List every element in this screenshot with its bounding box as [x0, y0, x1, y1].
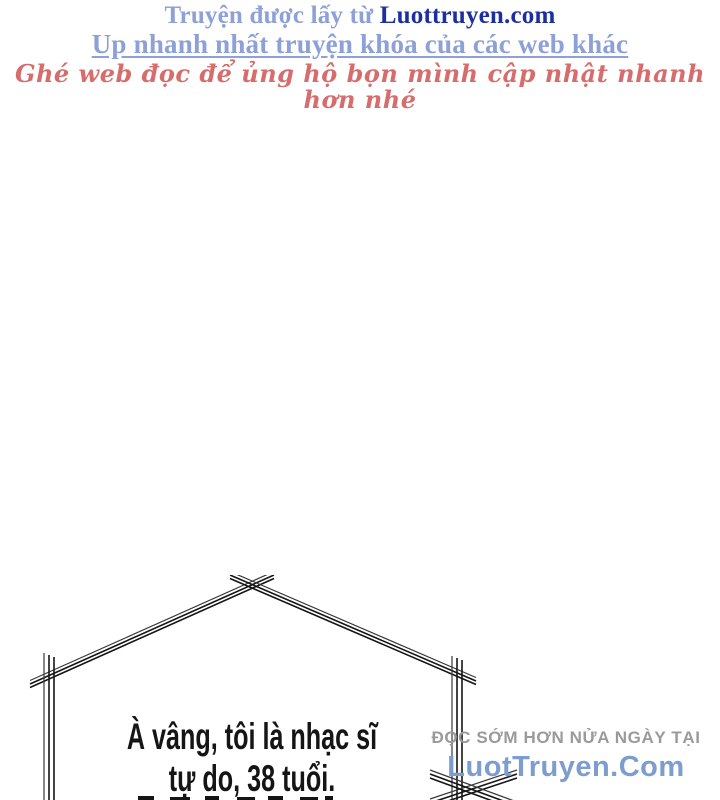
credit-source-text: Truyện được lấy từ	[165, 2, 380, 29]
bubble-right-roof-edge	[230, 575, 476, 685]
site-name-text: Luottruyen.com	[380, 2, 556, 29]
credit-source-line: Truyện được lấy từ Luottruyen.com	[0, 2, 720, 29]
credit-support-line: Ghé web đọc để ủng hộ bọn mình cập nhật …	[0, 61, 720, 113]
dialogue-text-line-1: À vâng, tôi là nhạc sĩ	[81, 716, 424, 758]
watermark-site-name: LuotTruyen.Com	[420, 751, 712, 784]
site-watermark: ĐỌC SỚM HƠN NỬA NGÀY TẠI LuotTruyen.Com	[420, 728, 712, 784]
watermark-tagline: ĐỌC SỚM HƠN NỬA NGÀY TẠI	[420, 728, 712, 748]
dialogue-text-line-2: tự do, 38 tuổi.	[81, 758, 424, 800]
comic-page: Truyện được lấy từ Luottruyen.com Up nha…	[0, 0, 720, 800]
credit-upload-line: Up nhanh nhất truyện khóa của các web kh…	[0, 30, 720, 59]
bubble-left-roof-edge	[30, 575, 274, 688]
bubble-left-wall-edge	[44, 653, 54, 800]
credits-banner: Truyện được lấy từ Luottruyen.com Up nha…	[0, 2, 720, 113]
